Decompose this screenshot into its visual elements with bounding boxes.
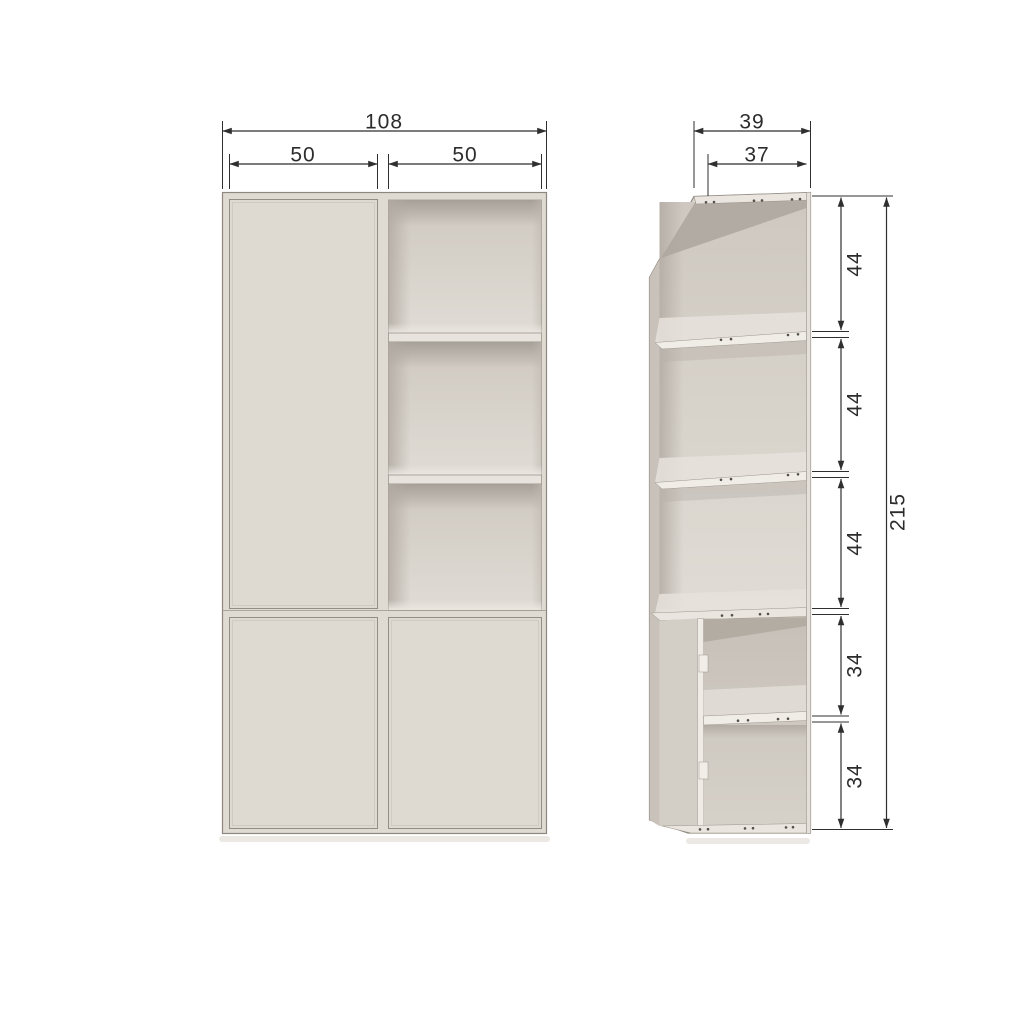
diagram-canvas (0, 0, 1024, 1024)
front-open-compartment-2 (389, 342, 542, 475)
dim-label-side-total-depth: 39 (739, 112, 764, 133)
side-shelf-1 (655, 312, 807, 362)
side-lower-shelf (704, 685, 807, 738)
side-lower-top-panel (651, 589, 807, 621)
front-shelf-2 (389, 475, 542, 484)
side-lower-side-panel (660, 619, 698, 832)
front-shelf-1 (389, 333, 542, 342)
dim-label-height-2: 44 (845, 391, 866, 416)
dim-label-height-5: 34 (845, 763, 866, 788)
side-lower-interior (704, 619, 807, 832)
front-tall-door (230, 200, 378, 609)
side-floor-shadow (686, 838, 810, 844)
dim-label-total-height: 215 (888, 493, 909, 531)
front-view-drawing (219, 193, 550, 843)
dim-label-height-3: 44 (845, 530, 866, 555)
dim-label-front-left-width: 50 (290, 145, 315, 166)
dim-label-front-total-width: 108 (365, 112, 403, 133)
hinge-tab-1 (699, 655, 708, 672)
furniture-dimension-diagram: 108 50 50 39 37 44 44 44 34 34 215 (0, 0, 1024, 1024)
hinge-tab-2 (699, 762, 708, 779)
front-open-compartment-1 (389, 200, 542, 333)
dim-label-side-inner-depth: 37 (744, 145, 769, 166)
side-shelf-2 (655, 452, 807, 502)
dim-label-front-right-width: 50 (452, 145, 477, 166)
front-floor-shadow (219, 836, 550, 842)
front-lower-left-door (230, 618, 378, 829)
side-view-drawing (650, 193, 811, 845)
front-lower-right-door (389, 618, 542, 829)
side-upper-interior (660, 197, 807, 609)
dim-label-height-1: 44 (845, 251, 866, 276)
side-front-edge (807, 193, 811, 834)
dim-label-height-4: 34 (845, 652, 866, 677)
front-open-compartment-3 (389, 484, 542, 610)
side-lower-section (660, 617, 807, 831)
